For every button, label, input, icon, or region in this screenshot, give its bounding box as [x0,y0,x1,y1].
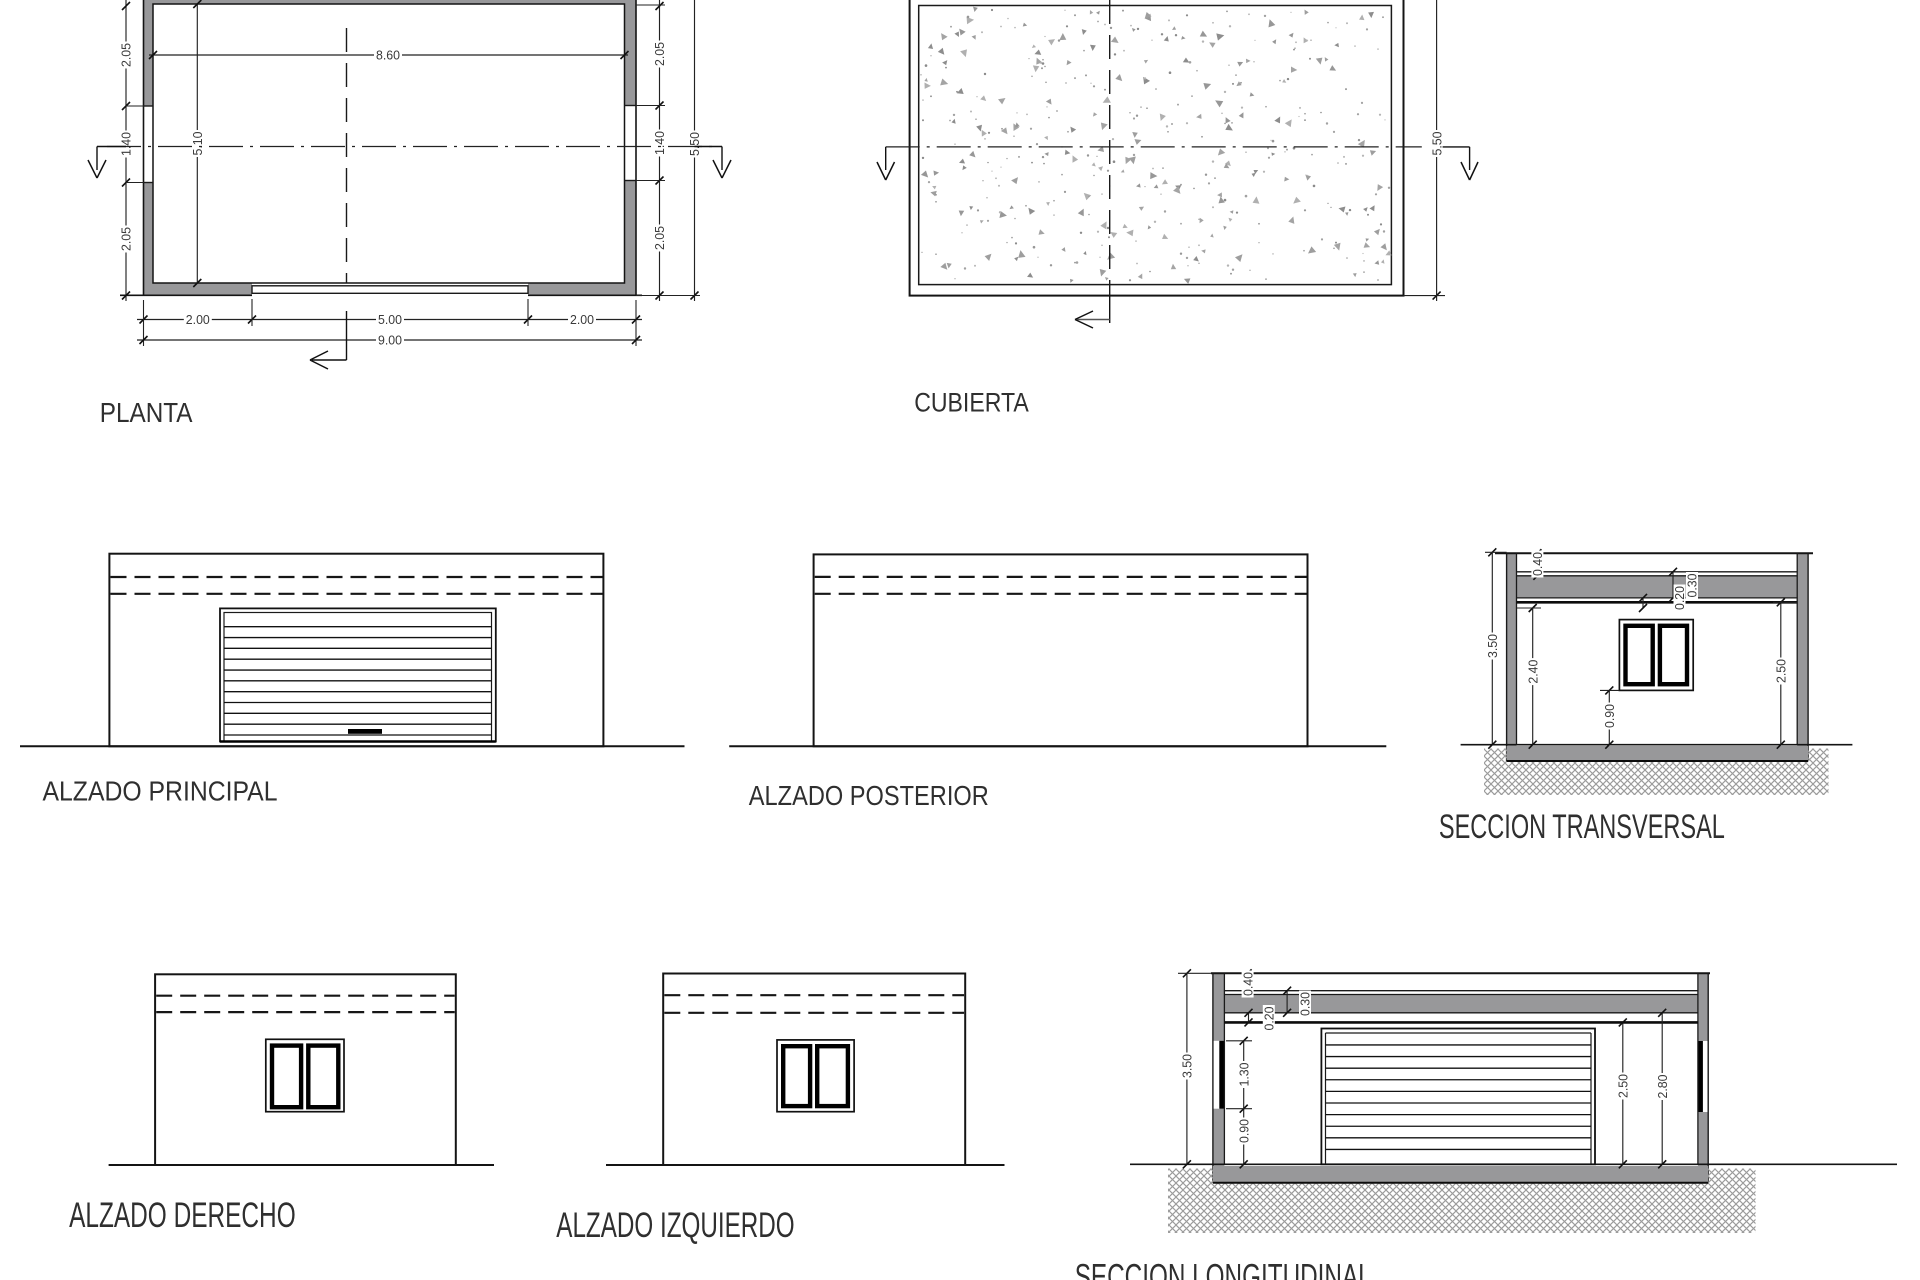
svg-text:PLANTA: PLANTA [100,397,193,428]
svg-text:ALZADO DERECHO: ALZADO DERECHO [69,1196,296,1235]
svg-text:0.40: 0.40 [1530,552,1545,576]
svg-text:2.05: 2.05 [119,43,134,67]
svg-text:5.00: 5.00 [378,312,402,327]
svg-text:2.05: 2.05 [119,227,134,251]
svg-text:ALZADO POSTERIOR: ALZADO POSTERIOR [749,780,989,811]
svg-text:2.40: 2.40 [1525,660,1540,684]
svg-text:SECCION LONGITUDINAL: SECCION LONGITUDINAL [1075,1258,1372,1280]
svg-text:0.90: 0.90 [1236,1119,1251,1143]
svg-text:ALZADO PRINCIPAL: ALZADO PRINCIPAL [43,776,278,807]
svg-text:5.10: 5.10 [190,132,205,156]
svg-text:0.20: 0.20 [1262,1007,1277,1031]
svg-text:9.00: 9.00 [378,333,402,348]
svg-text:1.40: 1.40 [119,132,134,156]
svg-text:8.60: 8.60 [376,48,400,63]
svg-text:CUBIERTA: CUBIERTA [914,388,1029,418]
svg-text:2.05: 2.05 [652,42,667,66]
svg-text:0.30: 0.30 [1298,992,1313,1016]
svg-text:2.05: 2.05 [652,226,667,250]
svg-text:0.20: 0.20 [1672,586,1687,610]
svg-text:2.50: 2.50 [1616,1074,1631,1098]
svg-text:1.30: 1.30 [1236,1063,1251,1087]
svg-text:5.50: 5.50 [1429,132,1444,156]
svg-text:2.80: 2.80 [1655,1075,1670,1099]
svg-text:SECCION TRANSVERSAL: SECCION TRANSVERSAL [1439,808,1725,846]
svg-text:3.50: 3.50 [1485,634,1500,658]
svg-text:ALZADO IZQUIERDO: ALZADO IZQUIERDO [556,1206,794,1245]
svg-text:0.40: 0.40 [1240,972,1255,996]
svg-text:2.00: 2.00 [570,312,594,327]
svg-text:0.90: 0.90 [1602,704,1617,728]
svg-text:2.50: 2.50 [1774,659,1789,683]
svg-text:5.50: 5.50 [687,132,702,156]
svg-text:1.40: 1.40 [652,131,667,155]
svg-text:3.50: 3.50 [1180,1054,1195,1078]
svg-text:2.00: 2.00 [186,312,210,327]
